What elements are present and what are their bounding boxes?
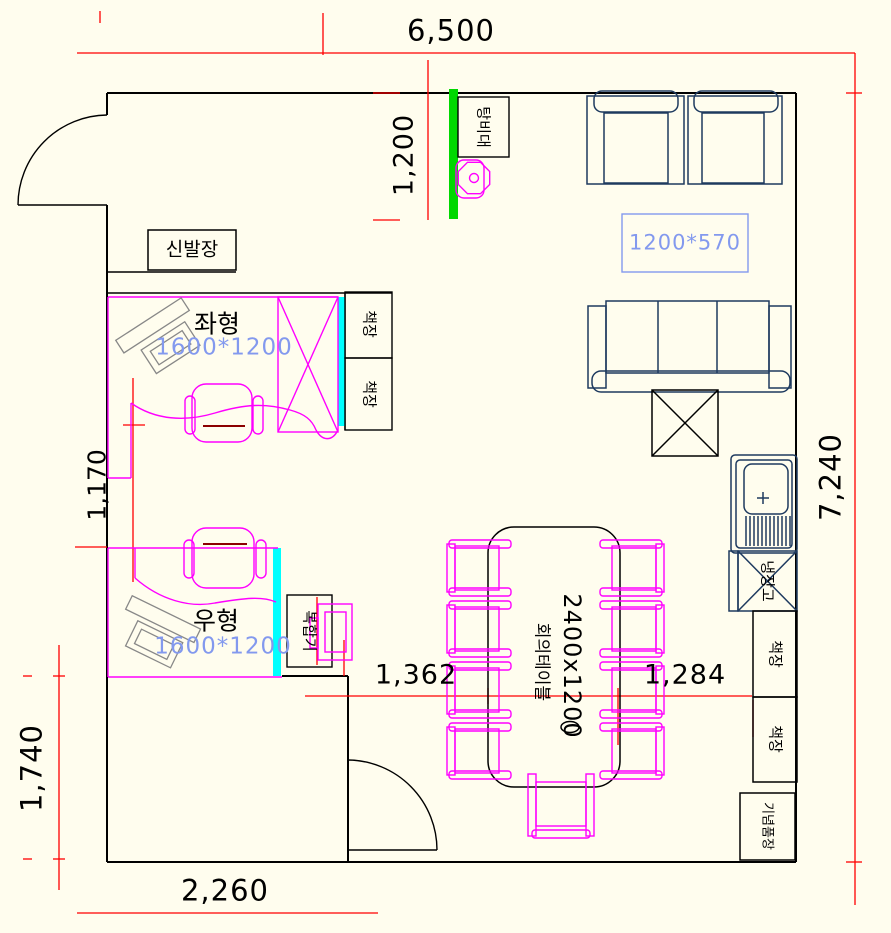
- armchair-pair: [587, 91, 782, 184]
- right-desk-size-label: 1600*1200: [154, 636, 292, 659]
- cyan-partition-bar-top: [338, 297, 345, 426]
- shoe-cabinet-label: 신발장: [166, 241, 218, 260]
- dim-overall-height: 7,240: [817, 433, 846, 521]
- bookshelf-label-2: 책장: [362, 380, 377, 408]
- left-desk-chair: [185, 384, 263, 442]
- dim-table-right-gap: 1,284: [644, 662, 726, 689]
- bookshelf-label-4: 책장: [768, 725, 783, 753]
- green-partition-bar: [449, 89, 458, 219]
- refrigerator-label: 냉장고: [760, 560, 775, 601]
- meeting-table-size-label: 2400x1200: [560, 593, 584, 738]
- souvenir-cabinet-label: 기념품장: [761, 802, 774, 850]
- left-desk-size-label: 1600*1200: [155, 337, 293, 360]
- dim-table-left-gap: 1,362: [375, 662, 457, 689]
- right-desk-chair: [184, 528, 266, 588]
- floorplan-drawing: [0, 0, 891, 933]
- stool: [456, 160, 490, 198]
- meeting-table-chairs: [447, 540, 664, 838]
- printer-label: 복합기: [302, 610, 317, 651]
- sink-unit: [731, 455, 797, 553]
- x-side-table: [652, 390, 718, 456]
- door-bottom: [348, 760, 437, 850]
- dim-pantry-depth: 1,200: [391, 114, 418, 196]
- three-seat-sofa: [588, 301, 791, 392]
- meeting-table-name-label: 회의테이블: [533, 623, 550, 701]
- bookshelf-label-1: 책장: [362, 310, 377, 338]
- pantry-label: 탕비대: [476, 106, 491, 147]
- dim-entry-width: 2,260: [181, 877, 269, 906]
- left-desk-type-label: 좌형: [194, 312, 240, 337]
- door-top-left: [18, 115, 107, 205]
- floorplan-canvas: 6,500 1,200 7,240 1,170 1,740 1,362 1,28…: [0, 0, 891, 933]
- dim-lower-left-height: 1,740: [18, 724, 47, 812]
- bookshelf-label-3: 책장: [768, 640, 783, 668]
- right-desk-type-label: 우형: [193, 609, 239, 634]
- dim-desk-gap: 1,170: [85, 449, 110, 521]
- dim-overall-width: 6,500: [407, 17, 495, 46]
- console-size-label: 1200*570: [629, 233, 741, 254]
